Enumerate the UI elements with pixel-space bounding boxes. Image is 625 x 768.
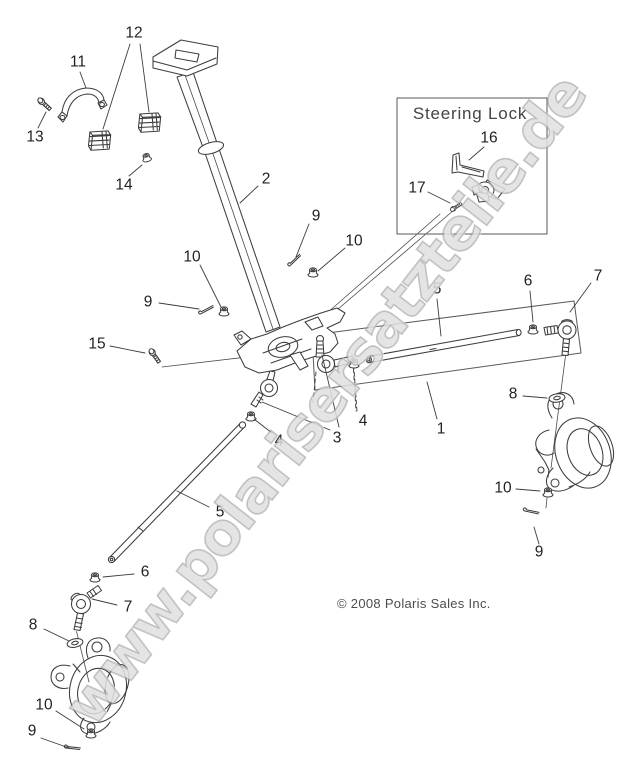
leader-line-9	[534, 527, 539, 544]
callout-10: 10	[35, 697, 53, 714]
reference-lines	[77, 210, 582, 682]
callout-7: 7	[124, 599, 133, 616]
leader-line-10	[516, 489, 540, 491]
leader-line-10	[200, 265, 221, 307]
callout-6: 6	[524, 273, 533, 290]
copyright-text: © 2008 Polaris Sales Inc.	[337, 596, 491, 611]
callout-8: 8	[509, 386, 518, 403]
leader-line-12	[140, 44, 149, 112]
column-clamp-half	[58, 88, 107, 122]
callout-6: 6	[141, 564, 150, 581]
cotter-pin-9	[198, 306, 214, 315]
column-bushing-12	[88, 129, 111, 152]
parts-diagram-page: Steering Lock 13111214291010915161756781…	[0, 0, 625, 768]
leader-line-9	[159, 303, 199, 309]
hex-nut-6	[528, 325, 538, 334]
leader-line-5	[177, 491, 209, 507]
callout-9: 9	[144, 294, 153, 311]
callout-4: 4	[275, 433, 284, 450]
flange-nut-10	[543, 488, 553, 497]
leader-line-10	[56, 711, 84, 729]
leader-line-13	[38, 112, 46, 128]
screw-17	[449, 202, 462, 213]
callout-14: 14	[115, 177, 133, 194]
leader-line-15	[110, 346, 145, 353]
leader-line-8	[44, 629, 69, 641]
leader-line-1	[427, 382, 437, 419]
callout-10: 10	[494, 480, 512, 497]
steering-knuckle-left	[51, 638, 134, 734]
cotter-pin-9	[64, 742, 80, 753]
diagram-art: Steering Lock 13111214291010915161756781…	[0, 0, 625, 768]
callout-10: 10	[345, 233, 363, 250]
steering-lock-inset: Steering Lock	[397, 98, 547, 234]
leader-line-12	[103, 44, 130, 129]
callout-9: 9	[312, 208, 321, 225]
steering-lock-lever	[452, 153, 484, 177]
hex-nut-6	[90, 573, 100, 582]
leader-line-7	[570, 283, 591, 312]
leader-line-5	[437, 299, 441, 336]
column-bushing-12	[138, 111, 161, 134]
callout-17: 17	[408, 180, 425, 197]
stud-align-line-right	[551, 356, 566, 468]
leader-line-11	[80, 72, 86, 88]
bolt-15	[148, 347, 162, 363]
callout-12: 12	[125, 25, 142, 42]
leader-line-4	[254, 419, 272, 433]
leader-line-3	[262, 402, 330, 430]
cotter-pin-9	[523, 505, 539, 517]
flange-nut-10	[219, 307, 229, 316]
callout-8: 8	[29, 617, 38, 634]
callout-10: 10	[183, 249, 201, 266]
callout-2: 2	[262, 171, 271, 188]
cotter-pin-9	[286, 254, 302, 266]
callout-3: 3	[333, 430, 342, 447]
callout-13: 13	[26, 129, 43, 146]
nut-align-line-right	[546, 498, 547, 508]
steering-lock-body	[472, 180, 505, 202]
leader-line-9	[41, 738, 69, 748]
tie-rod-right	[366, 330, 521, 363]
callout-7: 7	[594, 268, 603, 285]
inset-title: Steering Lock	[413, 104, 527, 123]
callout-9: 9	[535, 544, 544, 561]
bolt-13	[36, 97, 52, 112]
callout-5: 5	[216, 504, 225, 521]
hex-nut-4	[349, 359, 359, 368]
steering-column-tube	[177, 72, 280, 332]
callout-1: 1	[437, 421, 446, 438]
washer	[66, 637, 83, 649]
flange-nut-10	[308, 268, 318, 277]
callout-9: 9	[28, 723, 37, 740]
flange-nut-10	[86, 729, 96, 738]
leader-line-10	[318, 248, 345, 271]
callout-15: 15	[88, 336, 105, 353]
leader-line-8	[523, 396, 547, 398]
tie-rod-end-left	[70, 586, 102, 631]
leader-line-2	[240, 186, 258, 203]
leader-line-9	[296, 224, 309, 257]
callout-5: 5	[433, 281, 442, 298]
tie-rod-left	[108, 422, 245, 563]
flange-nut-14	[141, 153, 152, 163]
leader-line-14	[129, 165, 142, 176]
leader-line-16	[469, 147, 484, 160]
leader-line-7	[92, 599, 117, 605]
callout-16: 16	[480, 130, 497, 147]
tie-rod-end-right	[544, 320, 576, 356]
leader-line-17	[428, 192, 450, 203]
steering-knuckle-right	[536, 393, 621, 496]
leader-line-6	[103, 574, 134, 577]
lower-ball-joint	[251, 371, 278, 407]
callout-11: 11	[70, 54, 86, 71]
callout-4: 4	[359, 413, 368, 430]
